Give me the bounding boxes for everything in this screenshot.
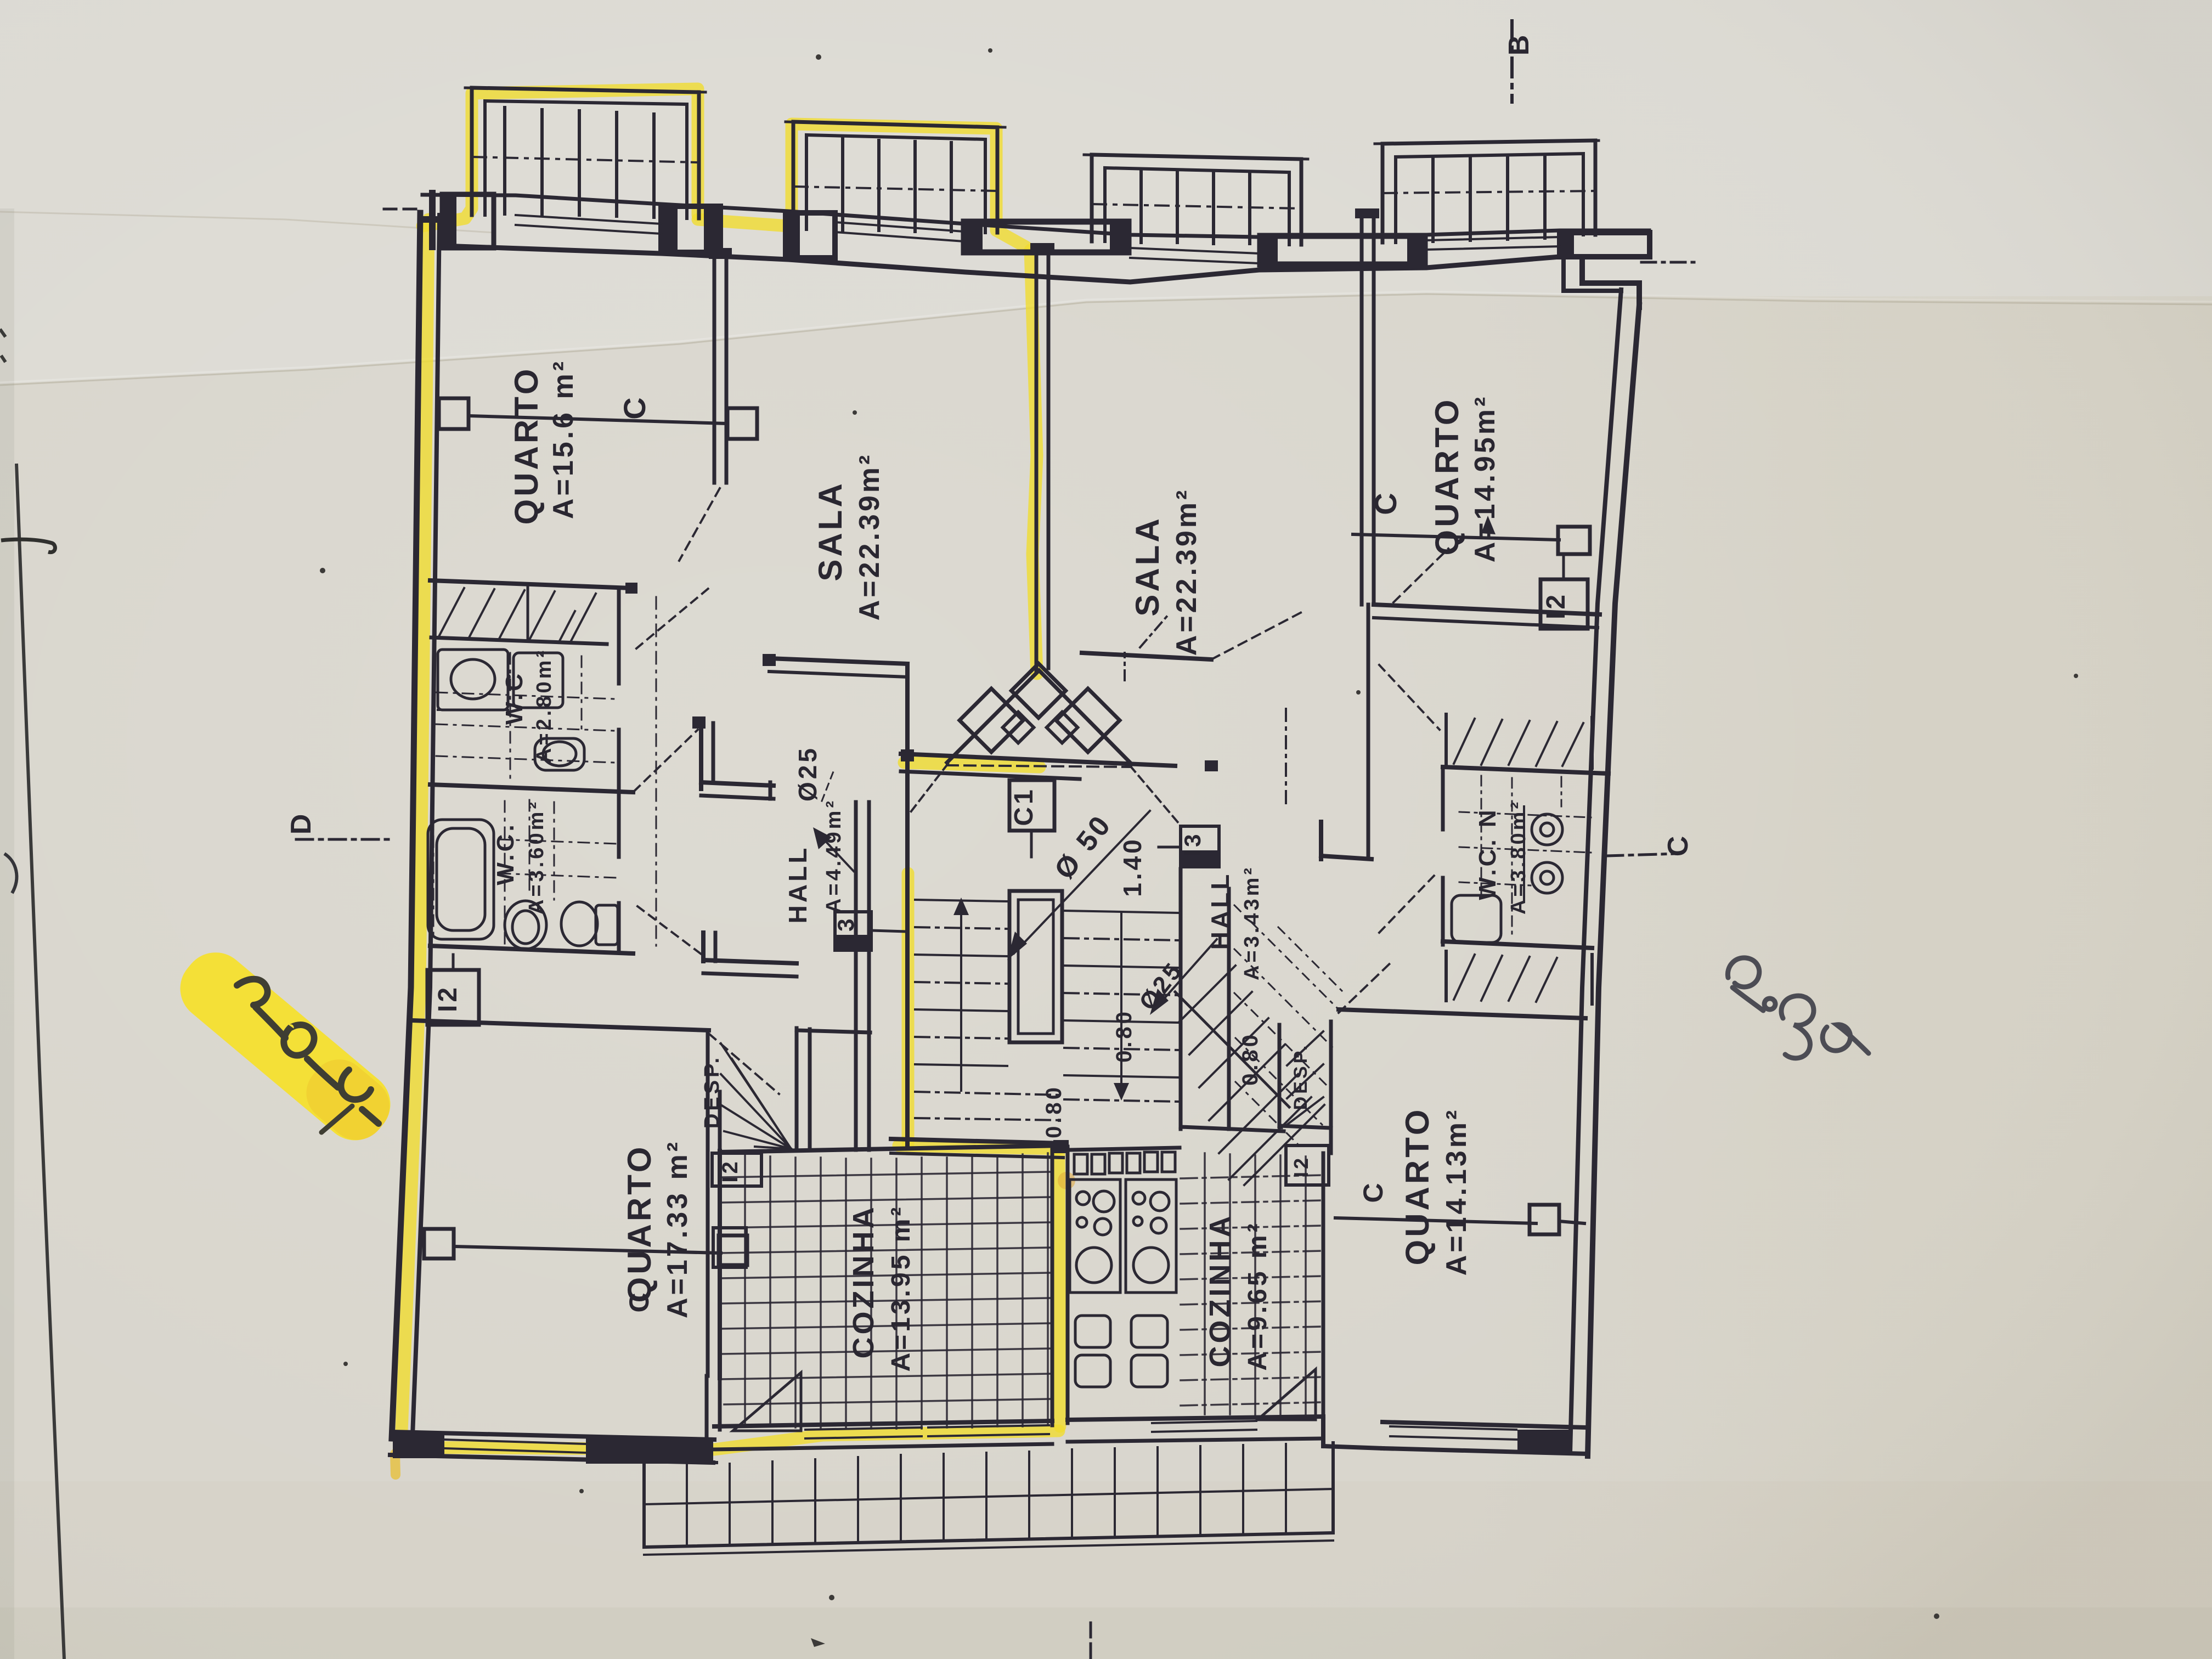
svg-text:COZINHA: COZINHA (1204, 1214, 1237, 1368)
svg-text:A=3.60m²: A=3.60m² (525, 799, 548, 915)
svg-text:SALA: SALA (1129, 516, 1166, 616)
svg-text:COZINHA: COZINHA (847, 1205, 880, 1359)
svg-text:Ø25: Ø25 (793, 746, 822, 802)
svg-text:C: C (1662, 833, 1694, 857)
svg-text:A=15.6 m²: A=15.6 m² (548, 359, 579, 519)
svg-text:I2: I2 (1542, 592, 1571, 619)
svg-text:A=17.33 m²: A=17.33 m² (662, 1139, 693, 1318)
svg-text:D: D (285, 811, 317, 835)
svg-text:C: C (617, 394, 652, 419)
svg-text:A=4.49m²: A=4.49m² (822, 798, 845, 913)
svg-text:0.80: 0.80 (1112, 1009, 1136, 1063)
svg-text:QUARTO: QUARTO (508, 366, 545, 525)
svg-text:QUARTO: QUARTO (621, 1144, 658, 1303)
svg-text:C: C (1358, 1180, 1389, 1203)
svg-text:A=3.43m²: A=3.43m² (1240, 865, 1263, 980)
svg-text:I2: I2 (718, 1159, 742, 1182)
svg-text:C: C (1368, 490, 1403, 515)
svg-text:I3: I3 (833, 916, 859, 940)
svg-text:A=22.39m²: A=22.39m² (854, 453, 885, 621)
svg-text:QUARTO: QUARTO (1399, 1107, 1436, 1266)
svg-text:A=9.65 m²: A=9.65 m² (1243, 1221, 1272, 1370)
svg-text:DESP.: DESP. (1290, 1043, 1311, 1110)
svg-text:SALA: SALA (812, 481, 849, 581)
svg-text:B: B (1503, 32, 1535, 56)
svg-text:0.80: 0.80 (1042, 1085, 1066, 1138)
svg-text:C: C (624, 1290, 654, 1312)
svg-text:HALL: HALL (1206, 872, 1234, 950)
svg-text:I3: I3 (1180, 831, 1205, 856)
svg-text:A=3.80m²: A=3.80m² (1507, 799, 1530, 915)
svg-text:HALL: HALL (783, 845, 812, 924)
svg-text:QUARTO: QUARTO (1429, 397, 1465, 556)
svg-text:1.40: 1.40 (1118, 837, 1147, 897)
svg-text:A=14.95m²: A=14.95m² (1469, 394, 1501, 563)
svg-text:W.C: W.C (501, 671, 528, 725)
svg-text:A=14.13m²: A=14.13m² (1441, 1108, 1472, 1276)
svg-text:0.80: 0.80 (1238, 1032, 1262, 1086)
svg-text:A=2.80m²: A=2.80m² (533, 648, 556, 763)
svg-text:A=22.39m²: A=22.39m² (1171, 488, 1203, 656)
svg-text:W.C.: W.C. (492, 822, 519, 885)
svg-text:W.C. N: W.C. N (1474, 807, 1501, 900)
svg-text:A=13.95 m²: A=13.95 m² (887, 1205, 916, 1372)
svg-text:DESP.: DESP. (701, 1055, 724, 1128)
svg-text:I2: I2 (433, 985, 462, 1012)
svg-text:I2: I2 (1290, 1155, 1312, 1177)
svg-text:C1: C1 (1009, 787, 1039, 826)
